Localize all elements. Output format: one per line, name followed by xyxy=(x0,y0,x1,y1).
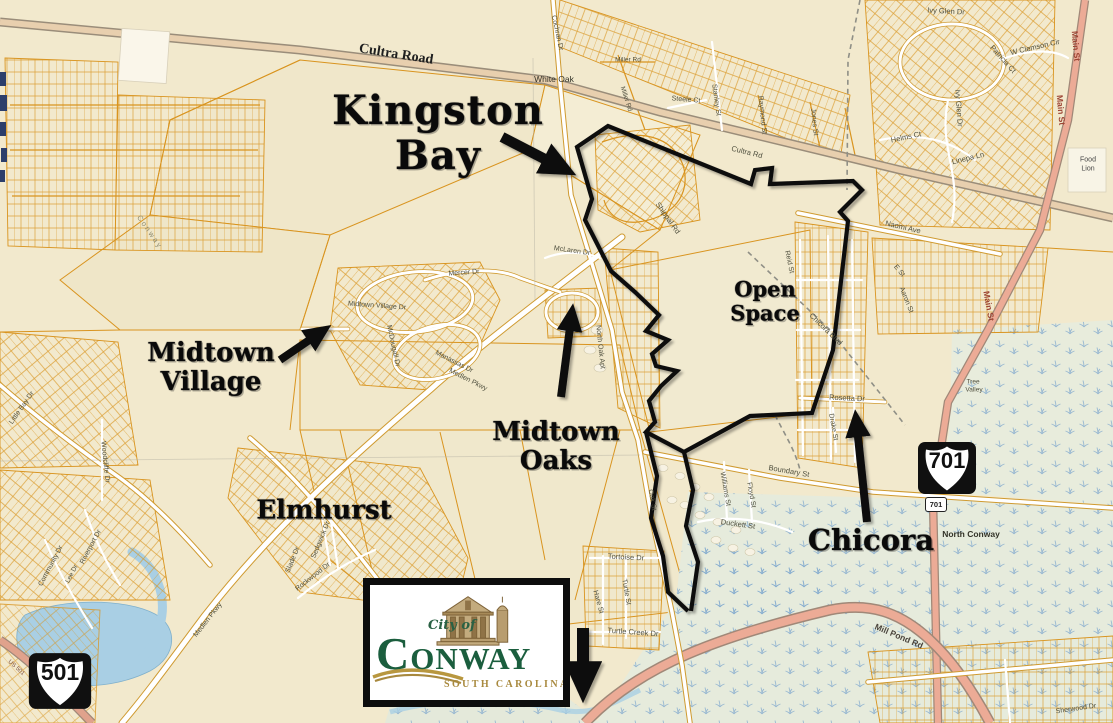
us-701-shield: 701 xyxy=(916,441,978,495)
label-midtown-oaks: Midtown Oaks xyxy=(492,418,619,476)
us-701-number: 701 xyxy=(916,448,978,474)
us-701-road-marker: 701 xyxy=(925,497,947,512)
label-open-space-line2: Space xyxy=(730,301,800,325)
us-501-shield: 501 xyxy=(27,652,93,710)
label-kingston-bay-line1: Kingston xyxy=(332,89,544,134)
label-midtown-village-line2: Village xyxy=(147,368,274,397)
label-midtown-village-line1: Midtown xyxy=(147,339,274,368)
label-open-space: Open Space xyxy=(730,277,800,324)
logo-city-name: CONWAY xyxy=(376,627,531,680)
label-open-space-line1: Open xyxy=(730,277,800,301)
conway-logo-box: City of CONWAY SOUTH CAROLINA xyxy=(363,578,570,707)
label-kingston-bay: Kingston Bay xyxy=(332,89,544,179)
label-midtown-oaks-line1: Midtown xyxy=(492,418,619,447)
us-501-number: 501 xyxy=(27,659,93,686)
label-chicora-line1: Chicora xyxy=(808,524,934,556)
map-canvas: Cultra RoadWhite OakCochran DrMiller RdM… xyxy=(0,0,1113,723)
label-elmhurst: Elmhurst xyxy=(256,496,391,525)
conway-logo: City of CONWAY SOUTH CAROLINA xyxy=(370,585,563,700)
label-midtown-oaks-line2: Oaks xyxy=(492,447,619,476)
label-chicora: Chicora xyxy=(808,524,934,556)
label-midtown-village: Midtown Village xyxy=(147,339,274,397)
logo-city-of-text: City of xyxy=(428,618,476,633)
label-kingston-bay-line2: Bay xyxy=(332,134,544,179)
logo-state-name: SOUTH CAROLINA xyxy=(444,679,563,690)
logo-city-rest: ONWAY xyxy=(410,641,531,676)
logo-city-initial: C xyxy=(376,628,410,679)
label-elmhurst-line1: Elmhurst xyxy=(256,496,391,525)
